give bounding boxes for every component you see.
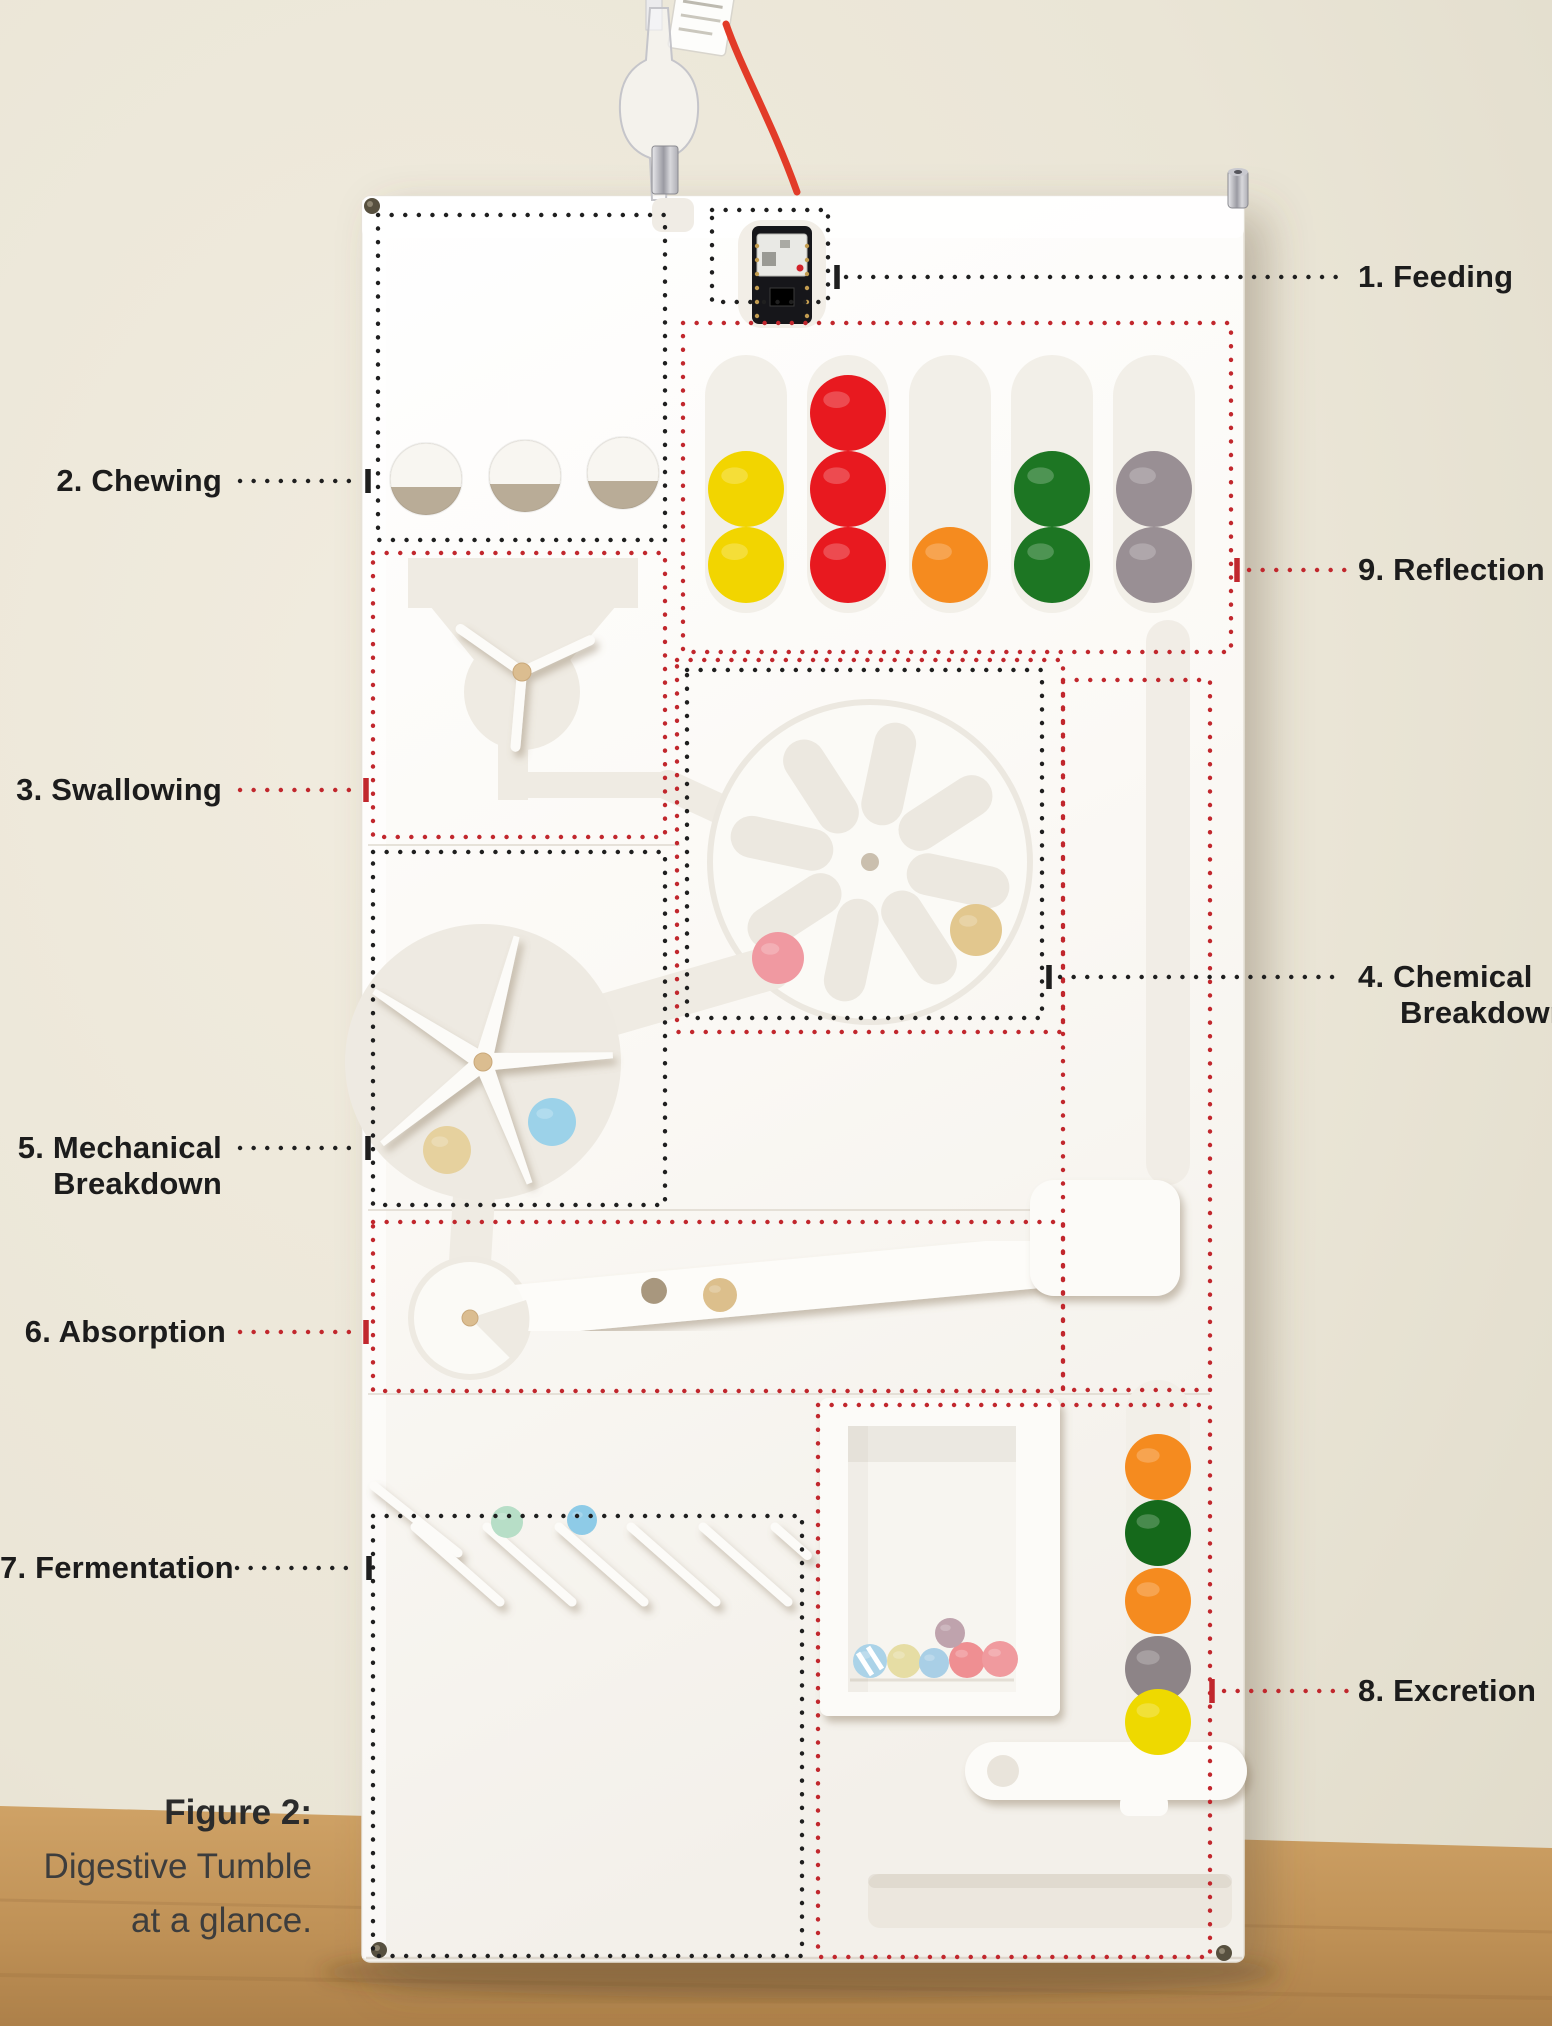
annotation-label-reflection: 9. Reflection [1358, 552, 1545, 588]
metal-clip [652, 146, 678, 194]
annotation-label-absorption: 6. Absorption [0, 1314, 226, 1350]
figure-caption: Figure 2: Digestive Tumble at a glance. [30, 1786, 312, 1948]
machine-photo-scene [0, 0, 1552, 2026]
caption-title: Figure 2: [164, 1793, 312, 1832]
absorption-channel-ball [703, 1278, 737, 1312]
annotation-label-swallowing: 3. Swallowing [0, 772, 222, 808]
reflection-column-orange [912, 527, 988, 603]
annotation-label-fermentation: 7. Fermentation [0, 1550, 222, 1586]
caption-line2: at a glance. [131, 1901, 312, 1940]
caption-line1: Digestive Tumble [44, 1847, 312, 1886]
annotation-label-chemical-breakdown: 4. Chemical Breakdown [1358, 959, 1552, 1031]
elbow-slab [1030, 1180, 1180, 1296]
microcontroller-board [738, 220, 826, 328]
annotation-label-chewing: 2. Chewing [0, 463, 222, 499]
annotation-label-excretion: 8. Excretion [1358, 1673, 1536, 1709]
annotation-label-feeding: 1. Feeding [1358, 259, 1513, 295]
excretion-channel-stack [1125, 1434, 1191, 1755]
right-vertical-channel [1146, 620, 1190, 1185]
annotation-label-mechanical-breakdown: 5. Mechanical Breakdown [0, 1130, 222, 1202]
channel-hole [641, 1278, 667, 1304]
reflection-column-red [810, 375, 886, 603]
figure-photo: 1. Feeding 2. Chewing 3. Swallowing 4. C… [0, 0, 1552, 2026]
